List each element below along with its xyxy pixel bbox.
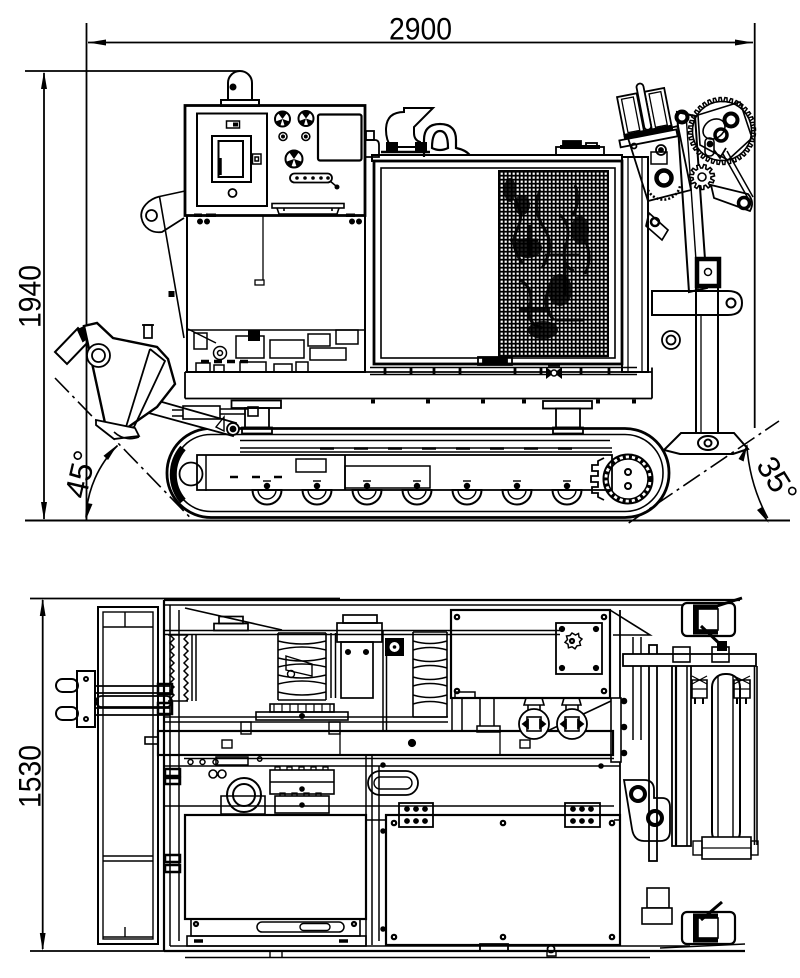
svg-text:2900: 2900 [389, 11, 452, 47]
svg-text:1940: 1940 [11, 265, 47, 328]
